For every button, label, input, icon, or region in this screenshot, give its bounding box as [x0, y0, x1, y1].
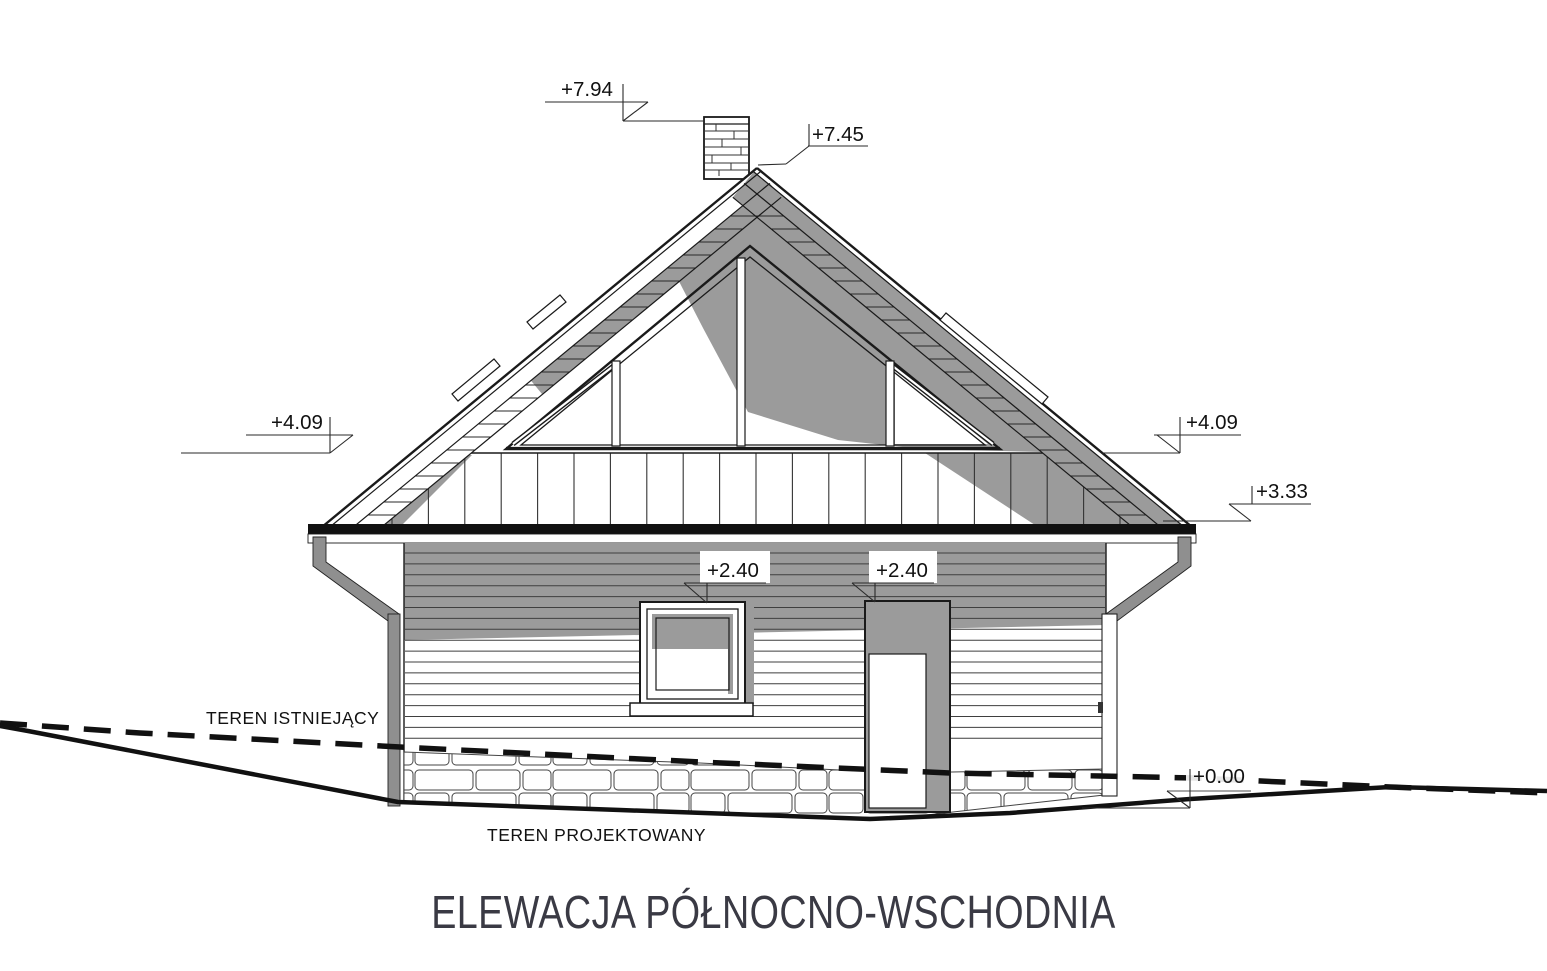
- marker-label: +4.09: [271, 411, 323, 434]
- downspout-right: [1098, 537, 1191, 796]
- elevation-svg: +7.94 +7.45 +4.09 +4.09 +3.33 +2.40: [0, 0, 1547, 971]
- marker-label: +0.00: [1193, 765, 1245, 788]
- gable-mullion-left: [612, 361, 620, 446]
- skylight-left-high: [527, 295, 566, 329]
- terrain-existing-label: TEREN ISTNIEJĄCY: [206, 708, 379, 728]
- pipe-bracket: [1098, 702, 1103, 713]
- marker-label: +2.40: [876, 559, 928, 582]
- elevation-marker-skirt-right: +3.33: [1163, 480, 1311, 521]
- window: [630, 602, 754, 716]
- downspout-left: [313, 537, 400, 806]
- elevation-drawing-page: +7.94 +7.45 +4.09 +4.09 +3.33 +2.40: [0, 0, 1547, 971]
- window-sill: [630, 703, 753, 716]
- gable-mullion-right: [886, 361, 894, 446]
- elevation-marker-eaves-left: +4.09: [181, 411, 353, 453]
- chimney: [704, 117, 749, 179]
- elevation-marker-chimney-top: +7.94: [545, 78, 705, 121]
- marker-label: +2.40: [707, 559, 759, 582]
- skirt-battens: [392, 453, 1120, 526]
- window-reveal-shadow: [745, 607, 754, 704]
- elevation-marker-eaves-right: +4.09: [1102, 411, 1241, 453]
- marker-label: +3.33: [1256, 480, 1308, 503]
- eaves-gutter: [308, 524, 1196, 543]
- terrain-designed-label: TEREN PROJEKTOWANY: [487, 825, 706, 845]
- gable-mullion-center: [737, 258, 745, 446]
- marker-label: +4.09: [1186, 411, 1238, 434]
- marker-label: +7.94: [561, 78, 613, 101]
- elevation-marker-ridge: +7.45: [758, 123, 868, 165]
- drawing-title: ELEWACJA PÓŁNOCNO-WSCHODNIA: [139, 886, 1408, 938]
- door-leaf: [869, 654, 926, 808]
- marker-label: +7.45: [812, 123, 864, 146]
- door: [865, 601, 950, 812]
